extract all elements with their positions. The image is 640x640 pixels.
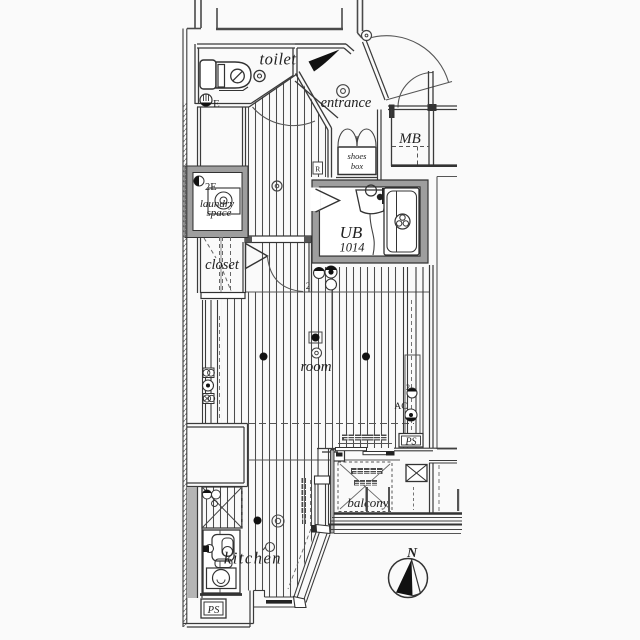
svg-text:E: E	[213, 98, 220, 110]
svg-text:shoes: shoes	[348, 151, 368, 161]
svg-text:2E: 2E	[205, 182, 217, 193]
svg-text:1014: 1014	[340, 241, 365, 255]
svg-text:N: N	[406, 546, 418, 561]
svg-text:entrance: entrance	[321, 95, 372, 111]
svg-text:2: 2	[406, 383, 410, 392]
svg-text:room: room	[300, 359, 331, 375]
svg-text:R: R	[315, 165, 320, 174]
svg-text:balcony: balcony	[347, 495, 388, 510]
svg-text:PS: PS	[207, 605, 220, 616]
svg-text:toilet: toilet	[260, 50, 297, 69]
svg-text:AC: AC	[394, 402, 407, 412]
svg-text:closet: closet	[205, 257, 240, 273]
svg-text:kitchen: kitchen	[224, 549, 282, 568]
svg-text:MB: MB	[398, 131, 421, 147]
svg-text:PS: PS	[404, 437, 416, 448]
svg-text:box: box	[351, 161, 364, 171]
svg-text:space: space	[206, 207, 231, 219]
svg-text:UB: UB	[340, 223, 363, 242]
